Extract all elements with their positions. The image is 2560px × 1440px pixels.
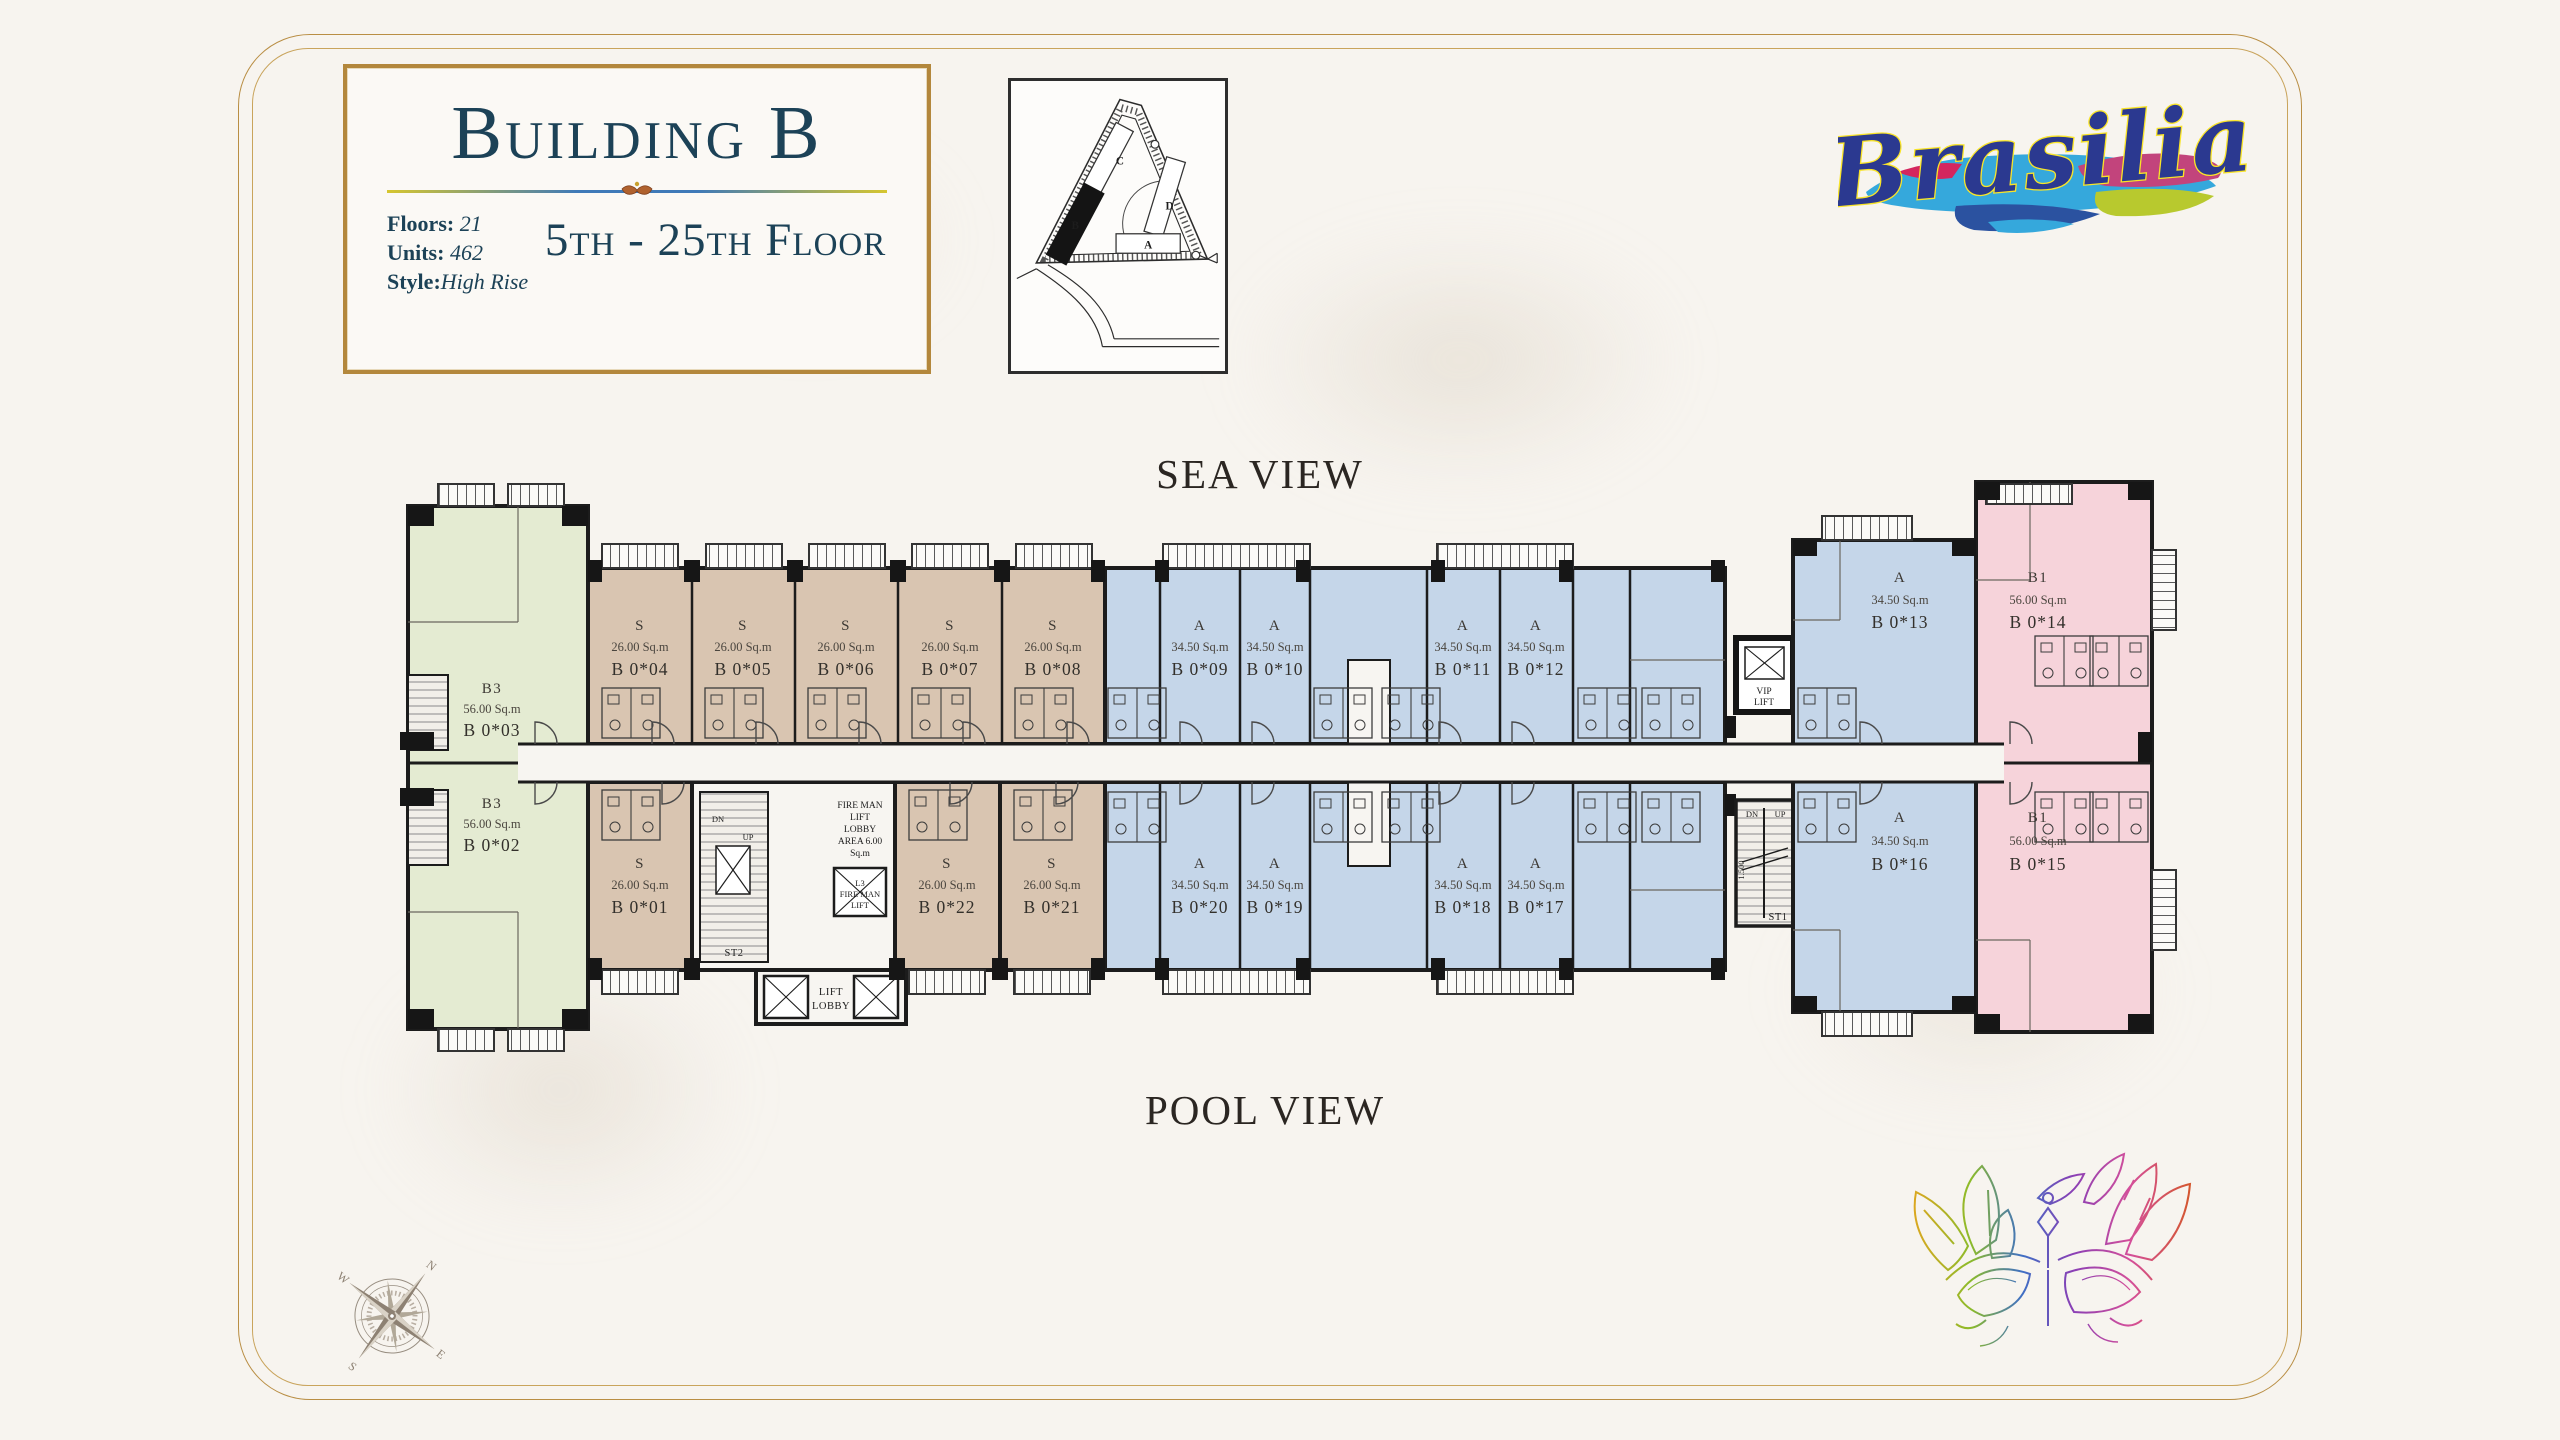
svg-text:B 0*04: B 0*04 <box>611 659 668 679</box>
svg-text:26.00 Sq.m: 26.00 Sq.m <box>1023 878 1081 892</box>
site-label-b: B <box>1071 220 1079 232</box>
compass-n: N <box>424 1257 440 1274</box>
brand-logo: Brasilia <box>1838 64 2250 269</box>
svg-text:LIFT: LIFT <box>851 900 870 910</box>
svg-text:A: A <box>1457 856 1469 872</box>
svg-text:FIRE MAN: FIRE MAN <box>840 889 880 899</box>
corridor <box>518 744 2004 782</box>
svg-text:26.00 Sq.m: 26.00 Sq.m <box>817 640 875 654</box>
svg-text:B 0*22: B 0*22 <box>918 897 975 917</box>
svg-text:S: S <box>635 856 645 872</box>
svg-text:Sq.m: Sq.m <box>850 849 870 859</box>
svg-text:LIFT: LIFT <box>1754 698 1774 708</box>
svg-text:ST1: ST1 <box>1768 912 1787 923</box>
svg-text:B1: B1 <box>2028 810 2049 826</box>
svg-text:AREA 6.00: AREA 6.00 <box>838 837 883 847</box>
svg-text:B 0*21: B 0*21 <box>1023 897 1080 917</box>
stat-style: Style:High Rise <box>387 267 528 296</box>
mask-ornament-icon <box>620 180 654 200</box>
title-card: Building B Floors: 21 Units: 462 Style:H… <box>343 64 931 374</box>
stat-floors: Floors: 21 <box>387 209 528 238</box>
vip-lift-core <box>1725 638 1793 816</box>
carnival-mask-icon <box>1888 1140 2208 1415</box>
svg-text:ST2: ST2 <box>724 948 743 959</box>
svg-text:B 0*08: B 0*08 <box>1024 659 1081 679</box>
pool-view-label: POOL VIEW <box>1120 1086 1410 1134</box>
svg-text:B 0*18: B 0*18 <box>1434 897 1491 917</box>
svg-text:1.500: 1.500 <box>1736 860 1746 879</box>
svg-text:S: S <box>738 618 748 634</box>
svg-text:S: S <box>942 856 952 872</box>
svg-text:A: A <box>1194 856 1206 872</box>
svg-text:56.00 Sq.m: 56.00 Sq.m <box>463 702 521 716</box>
site-label-c: C <box>1116 156 1124 168</box>
svg-text:A: A <box>1457 618 1469 634</box>
svg-text:B 0*14: B 0*14 <box>2009 612 2066 632</box>
svg-text:26.00 Sq.m: 26.00 Sq.m <box>611 878 669 892</box>
svg-text:A: A <box>1269 856 1281 872</box>
svg-text:B 0*10: B 0*10 <box>1246 659 1303 679</box>
floor-plan: B3 56.00 Sq.m B 0*03 B3 56.00 Sq.m B 0*0… <box>390 470 2180 1060</box>
svg-text:34.50 Sq.m: 34.50 Sq.m <box>1507 878 1565 892</box>
svg-text:A: A <box>1269 618 1281 634</box>
floor-plan-poster: { "title_card": { "title": "Building B",… <box>0 0 2560 1440</box>
compass-w: W <box>334 1269 352 1287</box>
compass-e: E <box>434 1346 448 1362</box>
svg-text:34.50 Sq.m: 34.50 Sq.m <box>1434 878 1492 892</box>
svg-text:FIRE MAN: FIRE MAN <box>837 801 882 811</box>
svg-text:UP: UP <box>743 832 754 842</box>
svg-text:DN: DN <box>712 814 724 824</box>
site-label-a: A <box>1144 239 1152 251</box>
svg-text:B 0*16: B 0*16 <box>1871 854 1928 874</box>
svg-text:26.00 Sq.m: 26.00 Sq.m <box>611 640 669 654</box>
svg-text:L3: L3 <box>855 878 864 888</box>
svg-text:34.50 Sq.m: 34.50 Sq.m <box>1871 593 1929 607</box>
svg-text:B 0*09: B 0*09 <box>1171 659 1228 679</box>
svg-text:A: A <box>1194 618 1206 634</box>
svg-text:B 0*19: B 0*19 <box>1246 897 1303 917</box>
svg-text:34.50 Sq.m: 34.50 Sq.m <box>1171 878 1229 892</box>
svg-text:B 0*11: B 0*11 <box>1435 659 1491 679</box>
svg-text:B1: B1 <box>2028 570 2049 586</box>
svg-text:B 0*17: B 0*17 <box>1507 897 1564 917</box>
svg-text:34.50 Sq.m: 34.50 Sq.m <box>1246 640 1304 654</box>
svg-text:A: A <box>1530 856 1542 872</box>
building-title: Building B <box>347 94 927 174</box>
stat-units: Units: 462 <box>387 238 528 267</box>
svg-text:LOBBY: LOBBY <box>812 1001 850 1012</box>
svg-text:B 0*03: B 0*03 <box>463 720 520 740</box>
svg-text:A: A <box>1894 810 1906 826</box>
svg-text:A: A <box>1894 570 1906 586</box>
compass-rose-icon: N E S W <box>322 1246 462 1391</box>
svg-text:56.00 Sq.m: 56.00 Sq.m <box>2009 834 2067 848</box>
floor-range: 5th - 25th Floor <box>528 213 903 267</box>
site-map-drawing: A B C D <box>1011 81 1225 371</box>
svg-text:56.00 Sq.m: 56.00 Sq.m <box>463 817 521 831</box>
svg-text:34.50 Sq.m: 34.50 Sq.m <box>1871 834 1929 848</box>
svg-text:B 0*12: B 0*12 <box>1507 659 1564 679</box>
site-label-d: D <box>1166 200 1174 212</box>
svg-text:B 0*01: B 0*01 <box>611 897 668 917</box>
svg-text:S: S <box>1047 856 1057 872</box>
svg-text:26.00 Sq.m: 26.00 Sq.m <box>921 640 979 654</box>
svg-text:S: S <box>1048 618 1058 634</box>
building-stats: Floors: 21 Units: 462 Style:High Rise <box>387 209 528 296</box>
title-divider <box>387 190 887 193</box>
svg-text:B 0*02: B 0*02 <box>463 835 520 855</box>
svg-text:B 0*13: B 0*13 <box>1871 612 1928 632</box>
svg-text:B 0*06: B 0*06 <box>817 659 874 679</box>
compass-s: S <box>346 1359 360 1374</box>
svg-text:B3: B3 <box>482 681 503 697</box>
svg-text:26.00 Sq.m: 26.00 Sq.m <box>714 640 772 654</box>
svg-text:34.50 Sq.m: 34.50 Sq.m <box>1246 878 1304 892</box>
svg-text:B 0*15: B 0*15 <box>2009 854 2066 874</box>
site-location-map: A B C D <box>1008 78 1228 374</box>
svg-text:B 0*05: B 0*05 <box>714 659 771 679</box>
svg-text:26.00 Sq.m: 26.00 Sq.m <box>918 878 976 892</box>
svg-text:A: A <box>1530 618 1542 634</box>
svg-text:34.50 Sq.m: 34.50 Sq.m <box>1171 640 1229 654</box>
svg-text:34.50 Sq.m: 34.50 Sq.m <box>1507 640 1565 654</box>
svg-text:DN: DN <box>1746 809 1758 819</box>
svg-text:B 0*20: B 0*20 <box>1171 897 1228 917</box>
title-card-details: Floors: 21 Units: 462 Style:High Rise 5t… <box>347 203 927 296</box>
svg-text:B3: B3 <box>482 796 503 812</box>
svg-text:S: S <box>945 618 955 634</box>
svg-text:26.00 Sq.m: 26.00 Sq.m <box>1024 640 1082 654</box>
svg-text:LOBBY: LOBBY <box>844 825 876 835</box>
svg-text:S: S <box>841 618 851 634</box>
svg-text:56.00 Sq.m: 56.00 Sq.m <box>2009 593 2067 607</box>
svg-text:LIFT: LIFT <box>819 987 843 998</box>
svg-text:S: S <box>635 618 645 634</box>
svg-text:VIP: VIP <box>1756 687 1771 697</box>
svg-text:B 0*07: B 0*07 <box>921 659 978 679</box>
svg-text:LIFT: LIFT <box>850 813 870 823</box>
svg-text:34.50 Sq.m: 34.50 Sq.m <box>1434 640 1492 654</box>
svg-text:UP: UP <box>1775 809 1786 819</box>
